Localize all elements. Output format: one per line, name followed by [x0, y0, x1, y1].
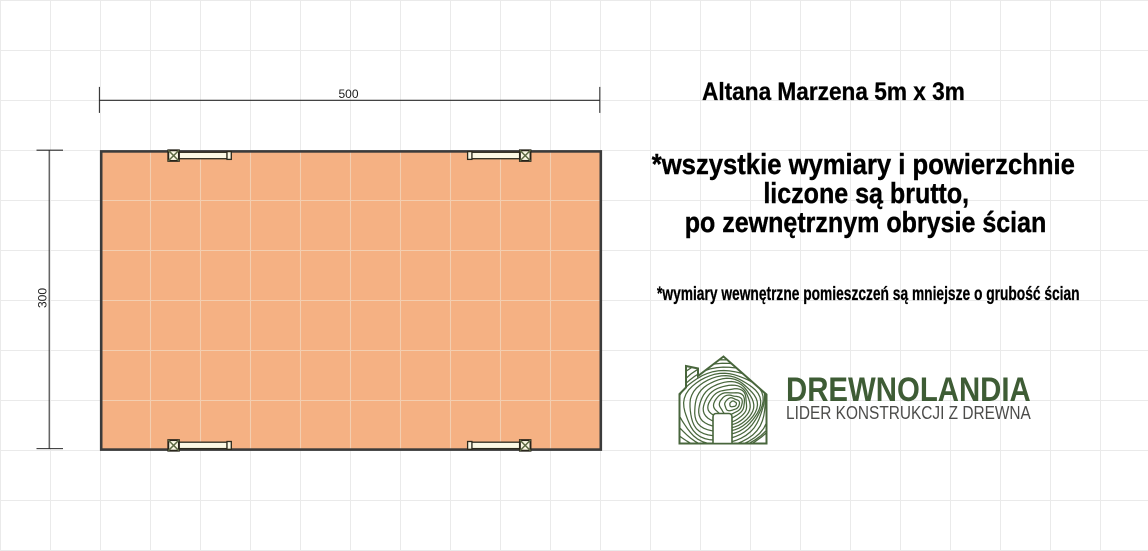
svg-text:500: 500 — [338, 87, 358, 101]
svg-text:300: 300 — [35, 288, 49, 308]
